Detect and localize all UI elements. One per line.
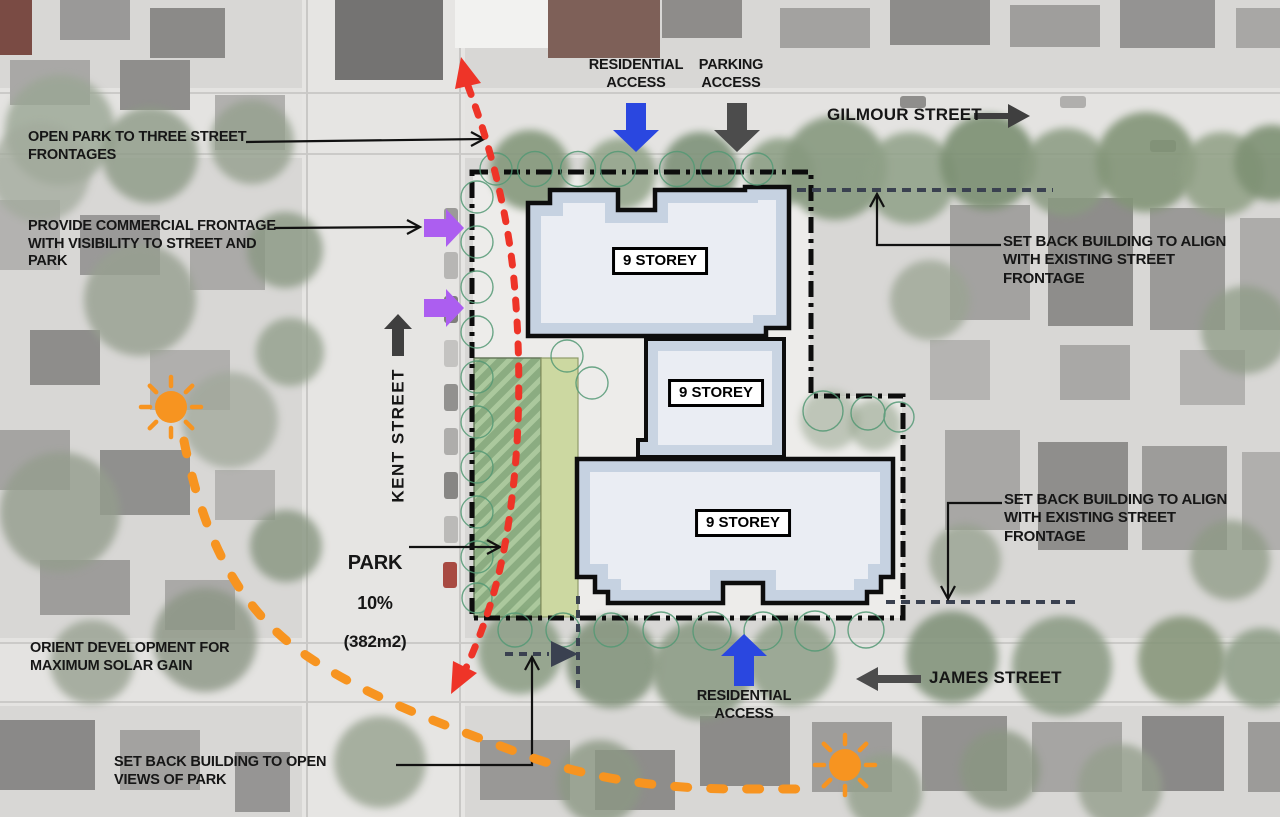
building-3-label: 9 STOREY: [695, 509, 791, 537]
annotation-setback-align-top: SET BACK BUILDING TO ALIGN WITH EXISTING…: [1003, 233, 1226, 288]
street-label-kent: KENT STREET: [389, 360, 410, 510]
annotation-setback-views: SET BACK BUILDING TO OPEN VIEWS OF PARK: [114, 754, 326, 789]
building-1-label: 9 STOREY: [612, 247, 708, 275]
street-label-james: JAMES STREET: [929, 668, 1062, 689]
park-percent: 10%: [322, 593, 428, 615]
annotation-orient-solar: ORIENT DEVELOPMENT FOR MAXIMUM SOLAR GAI…: [30, 640, 229, 675]
street-label-gilmour: GILMOUR STREET: [827, 105, 982, 126]
park-area-value: (382m2): [322, 632, 428, 653]
label-parking-access: PARKING ACCESS: [676, 57, 786, 92]
annotation-commercial-frontage: PROVIDE COMMERCIAL FRONTAGE WITH VISIBIL…: [28, 218, 276, 271]
park-title: PARK: [322, 551, 428, 575]
annotation-setback-align-bottom: SET BACK BUILDING TO ALIGN WITH EXISTING…: [1004, 491, 1227, 546]
label-residential-access-bottom: RESIDENTIAL ACCESS: [689, 688, 799, 723]
site-plan-diagram: OPEN PARK TO THREE STREET FRONTAGES PROV…: [0, 0, 1280, 817]
park-label: PARK 10% (382m2): [322, 533, 428, 671]
building-2-label: 9 STOREY: [668, 379, 764, 407]
annotation-open-park: OPEN PARK TO THREE STREET FRONTAGES: [28, 129, 246, 164]
label-residential-access-top: RESIDENTIAL ACCESS: [581, 57, 691, 92]
labels-layer: OPEN PARK TO THREE STREET FRONTAGES PROV…: [0, 0, 1280, 817]
